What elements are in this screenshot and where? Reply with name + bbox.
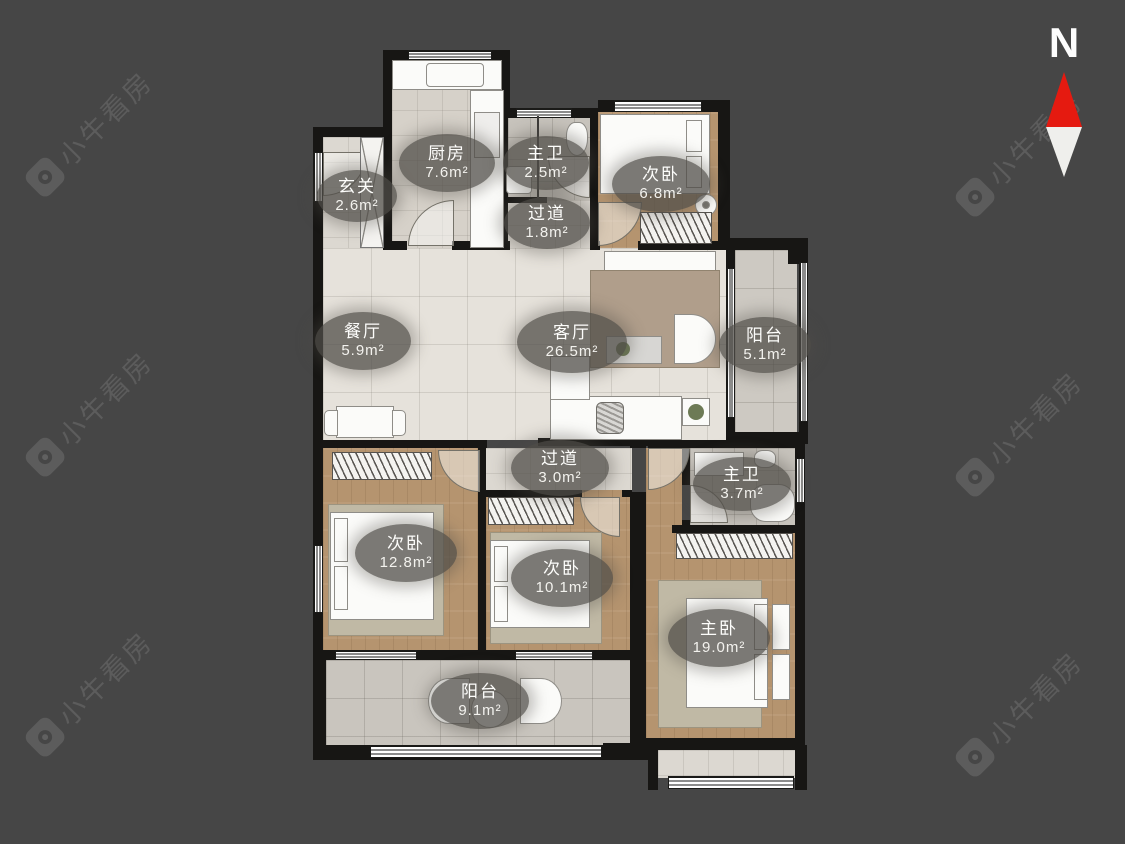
window bbox=[515, 650, 593, 660]
window bbox=[370, 745, 602, 758]
pouf bbox=[596, 402, 624, 434]
wall-segment bbox=[648, 440, 795, 448]
window bbox=[614, 100, 702, 112]
watermark: 小牛看房 bbox=[20, 61, 161, 202]
niu-logo-icon bbox=[22, 714, 67, 759]
dining-chair bbox=[392, 410, 406, 436]
watermark: 小牛看房 bbox=[20, 341, 161, 482]
wall-segment bbox=[632, 738, 798, 750]
wall-segment bbox=[313, 650, 326, 760]
nightstand bbox=[772, 654, 790, 700]
wall-segment bbox=[323, 440, 487, 448]
room-label-balcony-bottom: 阳台9.1m² bbox=[431, 673, 529, 729]
pillow bbox=[754, 654, 768, 700]
tv-console bbox=[604, 251, 716, 271]
window bbox=[795, 458, 805, 503]
pillow bbox=[494, 546, 508, 582]
room-label-master-bedroom: 主卧19.0m² bbox=[668, 609, 770, 667]
washing-machine-drum bbox=[702, 201, 710, 209]
plant bbox=[688, 404, 704, 420]
niu-logo-icon bbox=[22, 434, 67, 479]
wall-segment bbox=[313, 127, 385, 137]
compass-arrow-icon bbox=[1046, 72, 1082, 127]
window bbox=[313, 545, 323, 613]
watermark: 小牛看房 bbox=[950, 641, 1091, 782]
wardrobe bbox=[488, 497, 574, 525]
wall-segment bbox=[648, 750, 658, 790]
wall-segment bbox=[590, 108, 598, 250]
watermark: 小牛看房 bbox=[950, 361, 1091, 502]
room-label-bath-mid: 主卫3.7m² bbox=[693, 457, 791, 511]
dining-table bbox=[336, 406, 394, 438]
wardrobe bbox=[332, 452, 432, 480]
window bbox=[516, 108, 572, 118]
pillow bbox=[686, 120, 702, 152]
pillow bbox=[494, 586, 508, 622]
compass: N bbox=[1036, 22, 1092, 177]
room-label-bedroom-left: 次卧12.8m² bbox=[355, 524, 457, 582]
niu-logo-icon bbox=[952, 734, 997, 779]
wall-segment bbox=[383, 50, 392, 248]
niu-logo-icon bbox=[952, 454, 997, 499]
room-label-living: 客厅26.5m² bbox=[517, 311, 627, 373]
wall-segment bbox=[718, 100, 730, 248]
room-label-bedroom-top: 次卧6.8m² bbox=[612, 156, 710, 212]
niu-logo-icon bbox=[952, 174, 997, 219]
watermark: 小牛看房 bbox=[20, 621, 161, 762]
dining-chair bbox=[324, 410, 338, 436]
kitchen-sink bbox=[426, 63, 484, 87]
room-label-corridor-top: 过道1.8m² bbox=[504, 197, 590, 249]
nightstand bbox=[772, 604, 790, 650]
floorplan-canvas: 小牛看房 小牛看房 小牛看房 小牛看房 小牛看房 小牛看房 N bbox=[0, 0, 1125, 844]
room-label-bath-top: 主卫2.5m² bbox=[503, 136, 589, 190]
compass-north-label: N bbox=[1049, 22, 1079, 64]
room-label-entry: 玄关2.6m² bbox=[317, 170, 397, 222]
wall-segment bbox=[383, 241, 407, 250]
wall-segment bbox=[795, 745, 807, 790]
wall-segment bbox=[672, 525, 795, 533]
window bbox=[408, 50, 492, 60]
window bbox=[668, 776, 794, 789]
niu-logo-icon bbox=[22, 154, 67, 199]
room-label-balcony-right: 阳台5.1m² bbox=[719, 317, 811, 373]
room-label-corridor-mid: 过道3.0m² bbox=[511, 440, 609, 496]
room-floor-bay-extension bbox=[658, 750, 795, 778]
wardrobe bbox=[640, 212, 712, 244]
pillow bbox=[334, 518, 348, 562]
pillow bbox=[334, 566, 348, 610]
compass-arrow-tail-icon bbox=[1046, 127, 1082, 177]
room-label-kitchen: 厨房7.6m² bbox=[399, 134, 495, 192]
room-label-bedroom-mid: 次卧10.1m² bbox=[511, 549, 613, 607]
wardrobe bbox=[676, 533, 793, 559]
window bbox=[335, 650, 417, 660]
room-label-dining: 餐厅5.9m² bbox=[315, 312, 411, 370]
wall-segment bbox=[630, 492, 646, 748]
